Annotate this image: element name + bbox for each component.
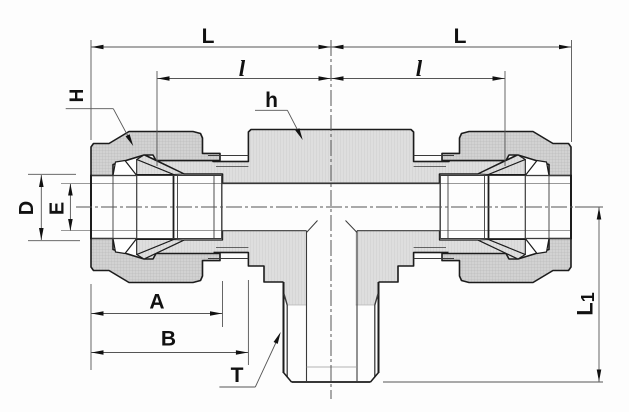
- svg-text:l: l: [239, 56, 246, 81]
- svg-text:E: E: [47, 202, 69, 215]
- svg-text:L: L: [202, 25, 215, 48]
- svg-text:A: A: [149, 291, 164, 314]
- svg-text:D: D: [16, 201, 38, 215]
- svg-text:T: T: [231, 364, 244, 387]
- svg-text:l: l: [416, 56, 423, 81]
- svg-text:H: H: [67, 89, 88, 103]
- svg-text:h: h: [265, 89, 278, 112]
- svg-text:B: B: [161, 328, 176, 351]
- svg-text:L: L: [454, 25, 467, 48]
